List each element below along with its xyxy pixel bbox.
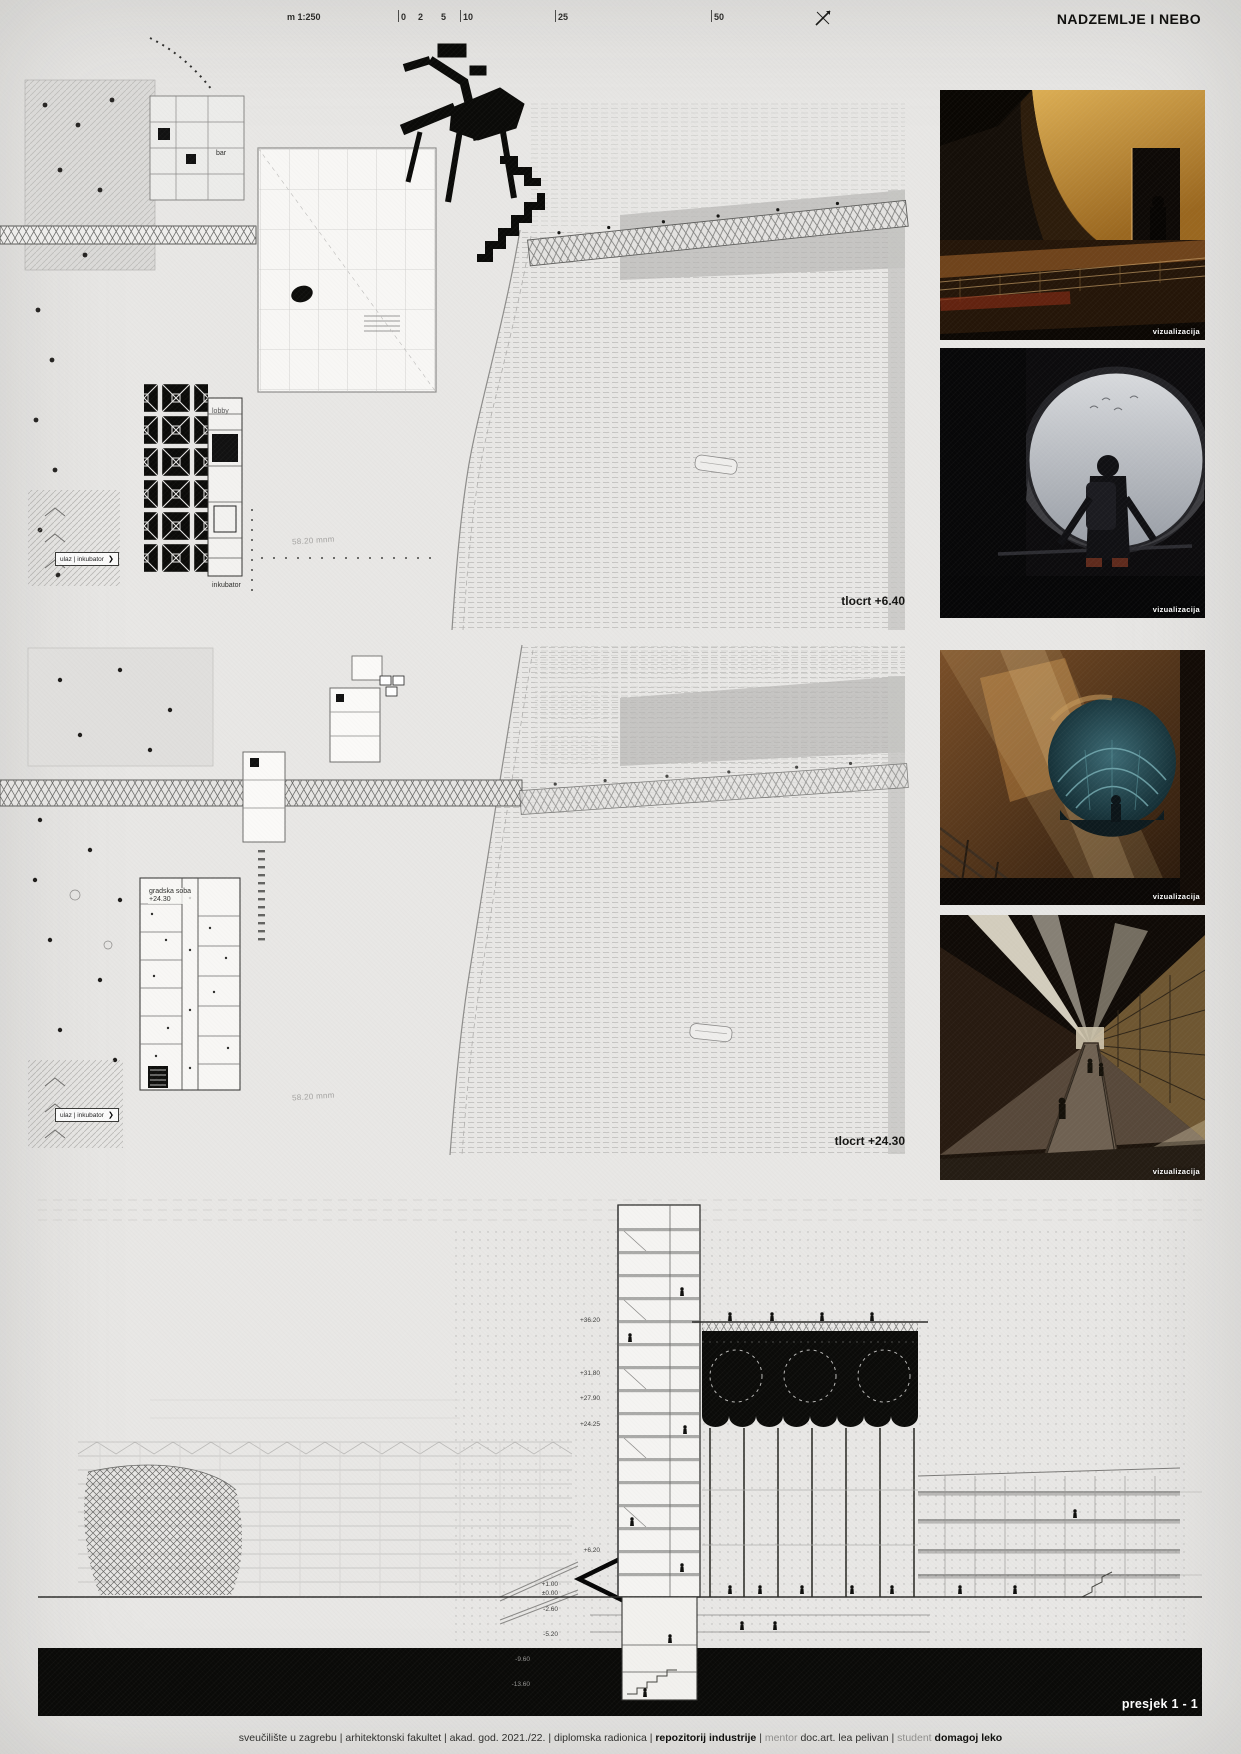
- footer-workshop-name: repozitorij industrije: [655, 1732, 756, 1744]
- plan-mid-level-label: tlocrt +24.30: [835, 1134, 905, 1148]
- scale-tick-mark: [555, 10, 556, 22]
- photo-caption: vizualizacija: [1153, 892, 1200, 901]
- section-drawing: [30, 1190, 1210, 1720]
- photo-caption: vizualizacija: [1153, 1167, 1200, 1176]
- section-title-label: presjek 1 - 1: [1122, 1697, 1198, 1711]
- elevation-label: +6.20: [584, 1547, 600, 1554]
- photo-caption: vizualizacija: [1153, 327, 1200, 336]
- footer-student-word: student: [897, 1732, 934, 1744]
- scale-tick-5: 5: [441, 12, 446, 22]
- elevation-label: -5.20: [543, 1631, 558, 1638]
- scale-tick-10: 10: [463, 12, 473, 22]
- visualization-photo-4: vizualizacija: [940, 915, 1205, 1180]
- elevation-label: -13.60: [512, 1681, 530, 1688]
- visualization-photo-3: vizualizacija: [940, 650, 1205, 905]
- floor-plan-mid-drawing: gradska soba +24.30 58.20 mnm ulaz | ink…: [0, 640, 910, 1160]
- page-title: NADZEMLJE I NEBO: [1057, 11, 1201, 27]
- floor-plan-top-drawing: bar lobby inkubator 58.20 mnm ulaz | ink…: [0, 30, 910, 640]
- footer-student-name: domagoj leko: [935, 1732, 1003, 1744]
- footer-separator: |: [756, 1732, 765, 1744]
- elevation-label: -2.60: [543, 1606, 558, 1613]
- plan-label-lobby: lobby: [212, 408, 229, 416]
- elevation-label: +1.00: [542, 1581, 558, 1588]
- scale-tick-25: 25: [558, 12, 568, 22]
- entrance-label: ulaz | inkubator: [60, 556, 104, 563]
- elevation-label: -9.60: [515, 1656, 530, 1663]
- footer-mentor-name: doc.art. lea pelivan: [800, 1732, 888, 1744]
- scale-tick-mark: [711, 10, 712, 22]
- entrance-label-box: ulaz | inkubator ❯: [55, 1108, 119, 1122]
- scale-label: m 1:250: [287, 12, 321, 22]
- room-level-label: +24.30: [149, 896, 171, 903]
- elevation-label: +36.20: [580, 1317, 600, 1324]
- entrance-label-box: ulaz | inkubator ❯: [55, 552, 119, 566]
- elevation-label: +27.90: [580, 1395, 600, 1402]
- plan-label-bar: bar: [216, 150, 226, 158]
- elevation-label: +24.25: [580, 1421, 600, 1428]
- scale-tick-mark: [398, 10, 399, 22]
- plan-top-level-label: tlocrt +6.40: [841, 594, 905, 608]
- scale-tick-0: 0: [401, 12, 406, 22]
- plan-label-incubator: inkubator: [212, 582, 241, 590]
- photo-caption: vizualizacija: [1153, 605, 1200, 614]
- plan-label-gradska-soba: gradska soba +24.30: [148, 888, 192, 904]
- room-label: gradska soba: [149, 888, 191, 895]
- scale-tick-50: 50: [714, 12, 724, 22]
- elevation-label: ±0.00: [542, 1590, 558, 1597]
- entrance-arrow-icon: ❯: [108, 555, 114, 563]
- footer-separator: |: [889, 1732, 898, 1744]
- visualization-photo-1: vizualizacija: [940, 90, 1205, 340]
- entrance-label: ulaz | inkubator: [60, 1112, 104, 1119]
- presentation-board: m 1:250 0 2 5 10 25 50 NADZEMLJE I NEBO: [0, 0, 1241, 1754]
- scale-tick-2: 2: [418, 12, 423, 22]
- footer-mentor-word: mentor: [765, 1732, 801, 1744]
- elevation-label: +31.80: [580, 1370, 600, 1377]
- visualization-photo-2: vizualizacija: [940, 348, 1205, 618]
- scale-tick-mark: [460, 10, 461, 22]
- entrance-arrow-icon: ❯: [108, 1111, 114, 1119]
- footer-text: sveučilište u zagrebu | arhitektonski fa…: [239, 1732, 656, 1744]
- footer-credits: sveučilište u zagrebu | arhitektonski fa…: [0, 1732, 1241, 1744]
